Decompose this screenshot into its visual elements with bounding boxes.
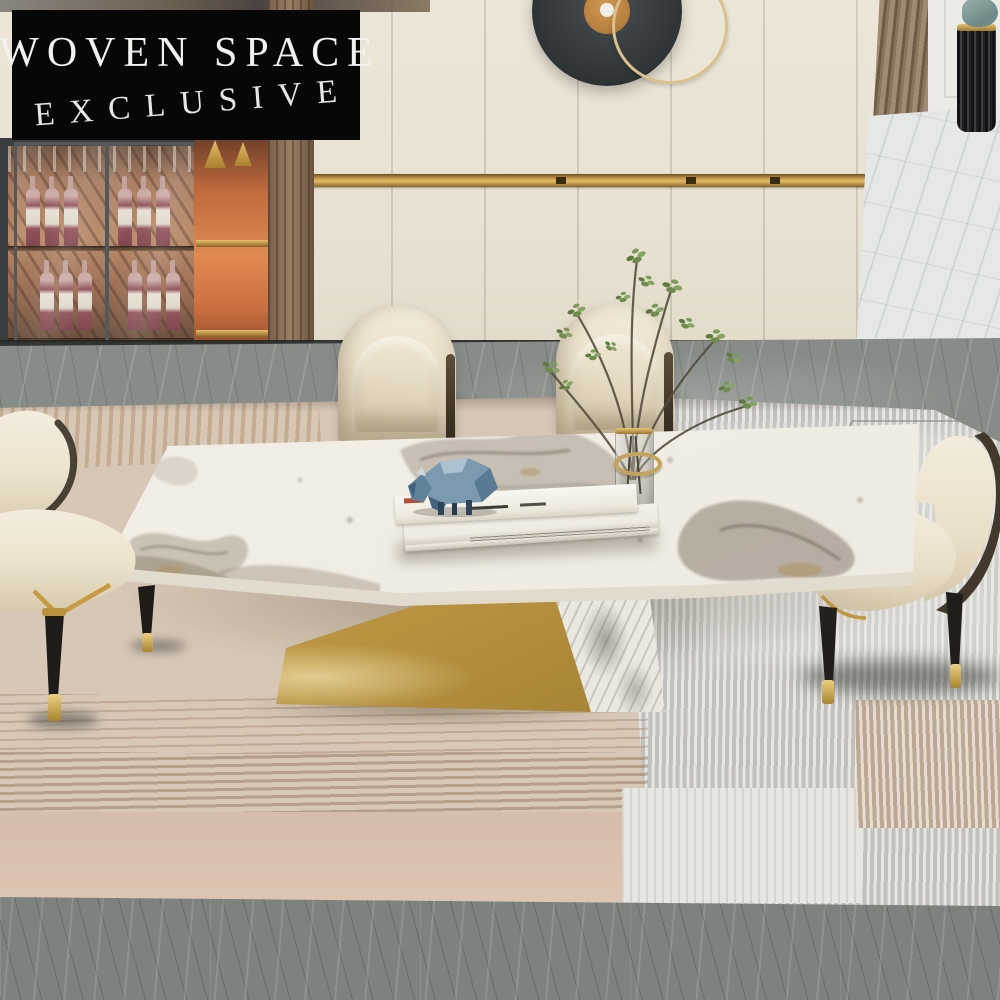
chair-leg (138, 585, 155, 638)
rug-white-block (622, 788, 862, 903)
product-photo: WOVEN SPACE EXCLUSIVE (0, 0, 1000, 1000)
chair-inner-curve (352, 336, 442, 432)
rug-pink-band (0, 812, 655, 900)
trim-handle-notch (686, 177, 696, 184)
wine-cabinet-glass-door (106, 142, 200, 350)
dining-chair-back-left (338, 306, 456, 444)
wine-cabinet-glass-door (14, 142, 108, 350)
trim-handle-notch (556, 177, 566, 184)
chair-leg (45, 613, 64, 698)
plant-leaves (540, 245, 758, 409)
teal-figurine (962, 0, 998, 27)
niche-gold-shelf (196, 240, 270, 247)
trim-handle-notch (770, 177, 780, 184)
faceted-bull-figurine (400, 450, 510, 520)
badge-subtitle: EXCLUSIVE (33, 72, 353, 134)
chair-leg-gold-ring (42, 608, 66, 616)
chair-leg-gold-foot (142, 633, 153, 652)
rug-tan-stripe-patch (856, 700, 1000, 828)
chair-leg-gold-foot (950, 664, 961, 688)
niche-gold-shelf (196, 330, 270, 337)
chair-dark-shell-edge (446, 354, 455, 442)
gold-base-highlight (270, 640, 490, 715)
chair-leg-gold-foot (822, 680, 834, 704)
chair-seat (0, 509, 136, 611)
chair-leg-gold-foot (48, 694, 61, 721)
vase-gold-ring-collar (614, 452, 662, 476)
rug-striped-band (0, 752, 648, 814)
black-fluted-vase (957, 26, 996, 132)
dining-chair-front-left (0, 405, 208, 745)
exclusive-badge: WOVEN SPACE EXCLUSIVE (12, 10, 360, 140)
vase-gold-rim (615, 428, 653, 434)
badge-brand-title: WOVEN SPACE (0, 29, 381, 77)
chair-leg (946, 592, 963, 668)
gold-trim-strip (298, 174, 876, 187)
